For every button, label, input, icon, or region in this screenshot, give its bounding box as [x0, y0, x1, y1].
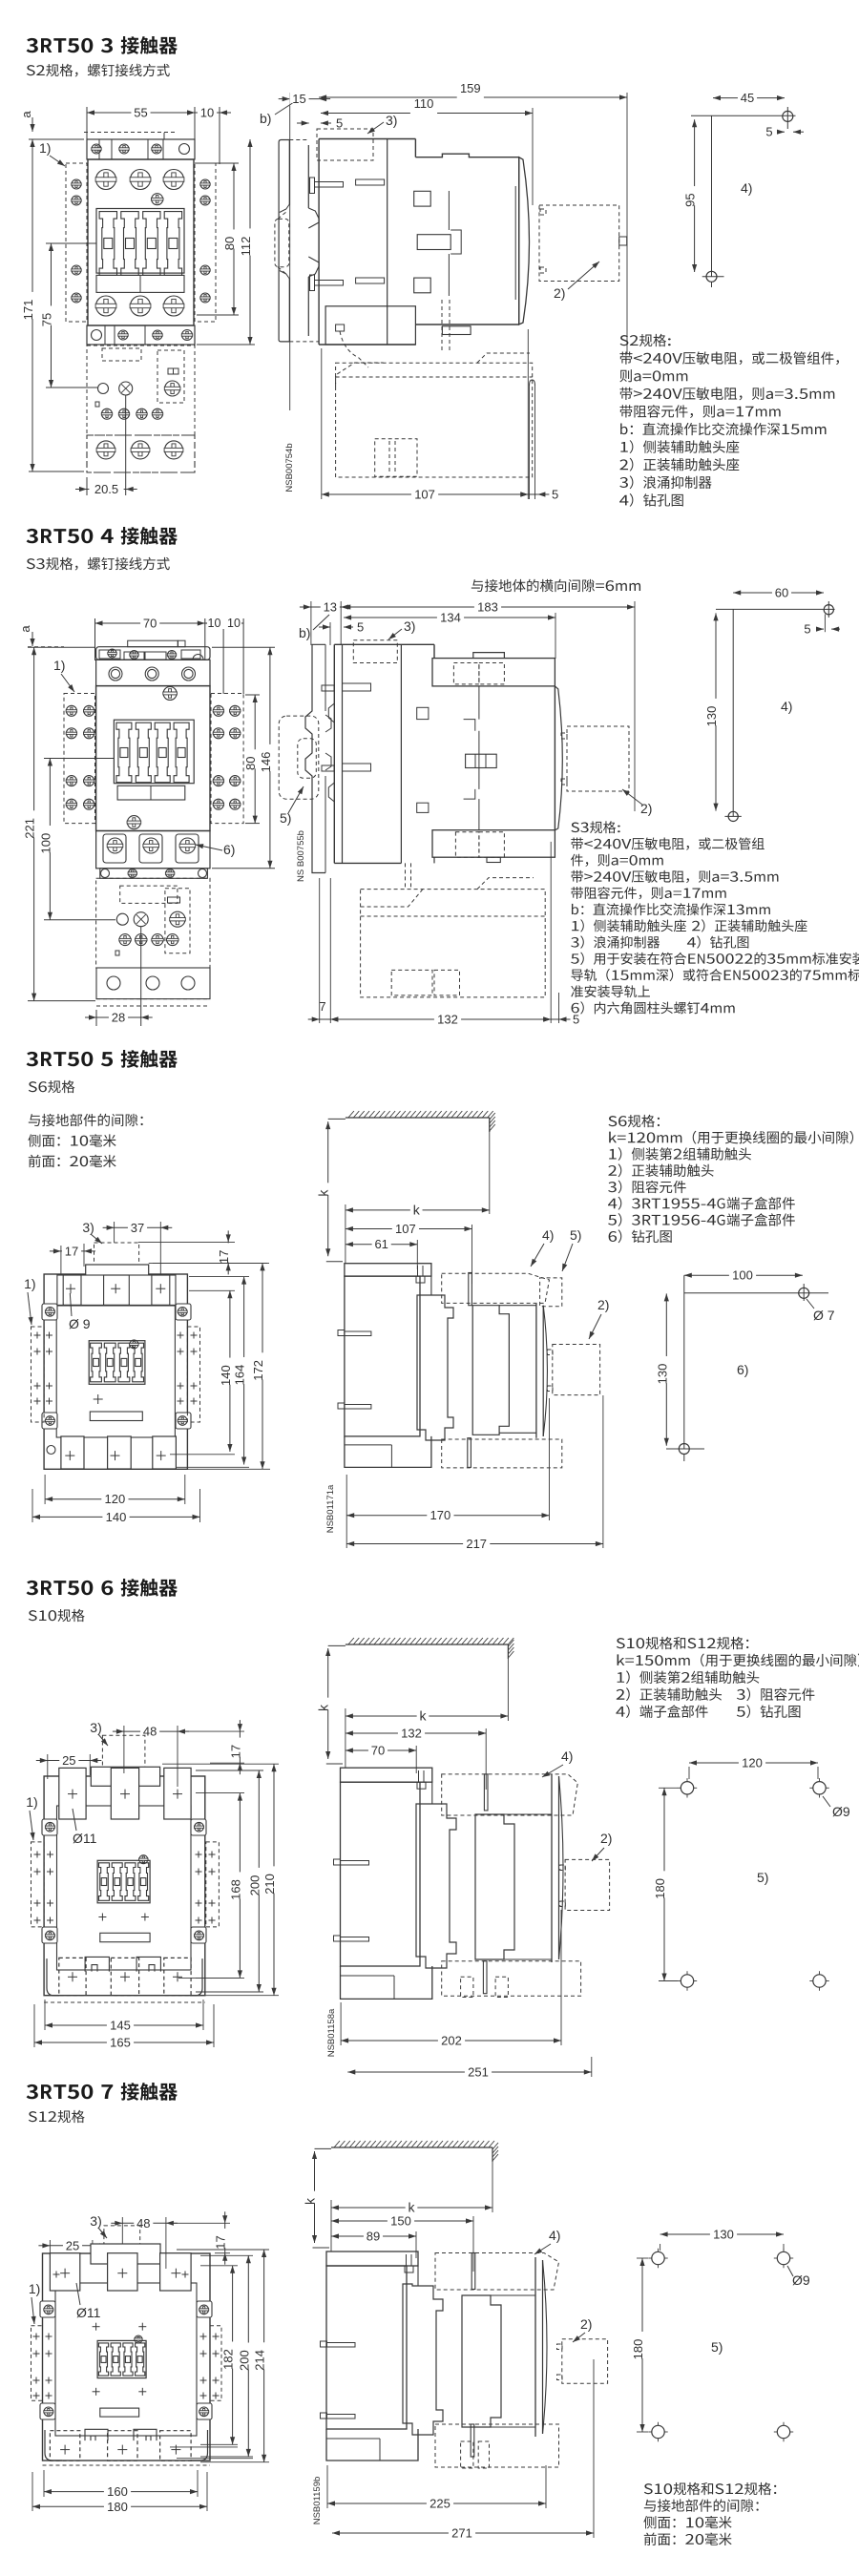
svg-text:200: 200 [247, 1875, 262, 1896]
svg-text:2): 2) [554, 285, 565, 301]
svg-text:217: 217 [466, 1537, 487, 1551]
svg-text:214: 214 [253, 2350, 267, 2371]
svg-text:164: 164 [233, 1365, 247, 1386]
svg-text:17: 17 [214, 2235, 228, 2249]
svg-text:140: 140 [106, 1510, 127, 1524]
svg-text:4): 4) [561, 1749, 573, 1764]
svg-text:NSB01171a: NSB01171a [325, 1484, 336, 1533]
svg-text:2): 2) [580, 2316, 592, 2332]
svg-text:17: 17 [228, 1745, 242, 1758]
svg-text:100: 100 [732, 1268, 753, 1283]
svg-text:6): 6) [223, 842, 235, 857]
svg-text:NSB00754b: NSB00754b [284, 443, 295, 492]
svg-text:1): 1) [53, 658, 65, 673]
svg-text:70: 70 [371, 1744, 385, 1758]
svg-text:140: 140 [219, 1365, 233, 1386]
svg-text:5): 5) [757, 1870, 768, 1885]
svg-text:110: 110 [414, 96, 434, 111]
svg-text:4): 4) [549, 2228, 560, 2243]
svg-text:3): 3) [404, 618, 415, 634]
svg-text:134: 134 [440, 611, 461, 625]
svg-text:80: 80 [243, 757, 258, 770]
svg-text:20.5: 20.5 [94, 482, 118, 496]
svg-text:4): 4) [542, 1227, 554, 1243]
svg-text:4): 4) [741, 180, 752, 196]
svg-text:130: 130 [704, 706, 719, 727]
svg-text:5): 5) [711, 2339, 723, 2355]
svg-text:107: 107 [414, 488, 435, 502]
svg-text:5: 5 [804, 622, 810, 637]
svg-text:180: 180 [107, 2500, 128, 2514]
svg-text:146: 146 [259, 752, 273, 773]
svg-text:2): 2) [640, 801, 652, 816]
svg-text:80: 80 [222, 237, 237, 250]
svg-text:5): 5) [570, 1227, 581, 1243]
svg-text:Ø11: Ø11 [76, 2305, 101, 2320]
svg-text:130: 130 [713, 2228, 734, 2242]
svg-text:2): 2) [600, 1831, 612, 1846]
svg-text:5: 5 [336, 116, 343, 131]
svg-text:13: 13 [324, 600, 337, 615]
svg-text:182: 182 [221, 2349, 236, 2370]
svg-text:k: k [420, 1708, 428, 1724]
svg-text:b): b) [299, 625, 310, 640]
svg-text:28: 28 [112, 1011, 125, 1025]
svg-text:k: k [303, 2197, 318, 2205]
svg-text:10: 10 [227, 617, 241, 630]
svg-text:159: 159 [460, 81, 481, 95]
svg-text:48: 48 [136, 2216, 150, 2230]
svg-text:7: 7 [319, 999, 325, 1014]
svg-text:15: 15 [292, 92, 305, 106]
svg-text:221: 221 [23, 818, 37, 839]
svg-text:1): 1) [39, 140, 51, 156]
svg-text:55: 55 [134, 106, 147, 120]
svg-text:25: 25 [62, 1753, 75, 1768]
svg-text:165: 165 [110, 2036, 131, 2050]
svg-text:160: 160 [107, 2484, 128, 2499]
svg-text:172: 172 [251, 1360, 265, 1381]
svg-text:Ø9: Ø9 [832, 1804, 850, 1819]
svg-text:120: 120 [105, 1492, 126, 1506]
svg-text:3): 3) [90, 1720, 101, 1735]
svg-text:Ø 9: Ø 9 [69, 1316, 91, 1331]
svg-text:17: 17 [217, 1250, 231, 1264]
svg-text:75: 75 [40, 313, 54, 326]
svg-text:130: 130 [655, 1364, 669, 1385]
svg-text:95: 95 [683, 193, 698, 206]
svg-text:145: 145 [110, 2019, 131, 2033]
svg-text:a: a [18, 625, 32, 633]
svg-text:3): 3) [386, 113, 397, 128]
svg-text:5: 5 [765, 125, 772, 139]
svg-text:107: 107 [395, 1222, 416, 1236]
svg-text:132: 132 [437, 1013, 458, 1027]
svg-text:112: 112 [239, 237, 253, 257]
svg-text:Ø9: Ø9 [792, 2272, 810, 2288]
svg-text:k: k [316, 1704, 331, 1711]
svg-text:NSB01159b: NSB01159b [312, 2477, 323, 2525]
svg-text:37: 37 [131, 1221, 144, 1235]
svg-text:271: 271 [451, 2526, 472, 2541]
svg-text:120: 120 [742, 1756, 763, 1770]
svg-text:210: 210 [262, 1874, 277, 1895]
svg-text:132: 132 [401, 1727, 422, 1741]
svg-text:NS B00755b: NS B00755b [296, 830, 306, 882]
svg-text:k: k [316, 1189, 331, 1197]
svg-text:45: 45 [741, 91, 754, 105]
svg-text:225: 225 [429, 2497, 450, 2511]
svg-text:5: 5 [552, 488, 558, 502]
svg-text:89: 89 [367, 2230, 380, 2244]
svg-text:100: 100 [38, 833, 52, 854]
svg-text:k: k [409, 2200, 416, 2215]
svg-text:1): 1) [24, 1276, 35, 1291]
svg-text:202: 202 [441, 2034, 462, 2048]
svg-text:5): 5) [280, 810, 291, 826]
svg-text:1): 1) [29, 2281, 40, 2296]
svg-text:6): 6) [737, 1362, 748, 1377]
svg-text:183: 183 [477, 600, 498, 615]
svg-text:10: 10 [208, 617, 221, 630]
svg-text:k: k [413, 1202, 421, 1217]
svg-text:171: 171 [21, 300, 35, 321]
svg-text:17: 17 [65, 1244, 78, 1258]
svg-text:Ø11: Ø11 [73, 1831, 97, 1846]
svg-text:70: 70 [143, 617, 157, 631]
svg-text:2): 2) [597, 1297, 609, 1312]
svg-text:Ø 7: Ø 7 [813, 1308, 835, 1323]
svg-text:180: 180 [653, 1878, 667, 1899]
svg-text:200: 200 [237, 2350, 251, 2371]
svg-text:5: 5 [357, 620, 364, 635]
svg-text:251: 251 [468, 2065, 489, 2080]
svg-text:10: 10 [200, 106, 214, 120]
svg-text:b): b) [260, 111, 271, 126]
svg-text:170: 170 [430, 1508, 451, 1522]
svg-text:168: 168 [228, 1879, 242, 1900]
svg-text:a: a [19, 111, 33, 118]
svg-text:60: 60 [775, 586, 788, 600]
svg-text:150: 150 [390, 2214, 411, 2229]
svg-text:1): 1) [26, 1794, 37, 1810]
svg-text:61: 61 [374, 1237, 388, 1251]
svg-text:4): 4) [781, 699, 792, 714]
svg-text:3): 3) [90, 2213, 101, 2229]
svg-text:3): 3) [82, 1220, 94, 1235]
svg-text:25: 25 [66, 2238, 79, 2252]
svg-text:5: 5 [573, 1013, 579, 1027]
svg-text:180: 180 [631, 2339, 645, 2360]
svg-text:NSB01158a: NSB01158a [326, 2008, 337, 2057]
